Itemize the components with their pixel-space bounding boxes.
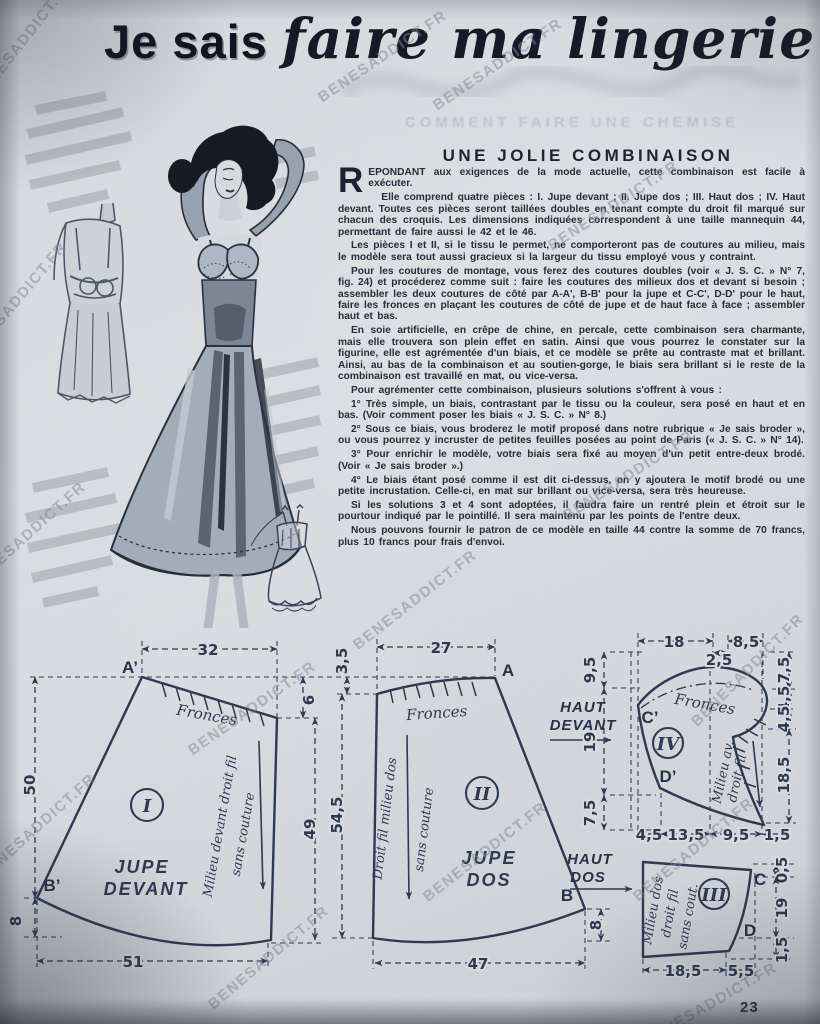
- figure-legs: [208, 574, 244, 628]
- piece-1-corner-a: A’: [122, 658, 138, 677]
- haut-dos-label-2: DOS: [570, 869, 606, 886]
- svg-text:3,5: 3,5: [333, 648, 351, 675]
- svg-text:1,5: 1,5: [773, 937, 791, 964]
- piece-1-name: JUPE: [114, 857, 169, 877]
- piece-1-dimensions: 32 50 8 51 6 49: [7, 641, 325, 971]
- page-number: 23: [740, 999, 759, 1016]
- piece-4-roman: IV: [656, 734, 681, 755]
- page-header: Je saisfaire ma lingerie: [104, 6, 815, 71]
- piece-1-name2: DEVANT: [104, 879, 189, 899]
- paragraph: 4° Le biais étant posé comme il est dit …: [338, 475, 805, 498]
- piece-1-roman: I: [142, 796, 152, 817]
- pattern-piece-4-haut-devant: Fronces IV C’ D’ Milieu av. droit fil 18…: [636, 633, 796, 844]
- piece-1-grainline-label: Milieu devant droit fil: [201, 754, 241, 899]
- svg-text:27: 27: [431, 639, 452, 657]
- svg-text:19: 19: [773, 898, 791, 919]
- piece-1-fronces-label: Fronces: [174, 701, 239, 730]
- svg-text:9,5: 9,5: [581, 657, 599, 684]
- svg-text:8,5: 8,5: [733, 633, 760, 651]
- piece-2-fronces-label: Fronces: [404, 702, 468, 724]
- pattern-diagrams: Fronces I JUPE DEVANT A’ B’ Milieu devan…: [0, 623, 820, 1024]
- svg-text:51: 51: [123, 953, 144, 971]
- svg-text:1,5: 1,5: [764, 826, 791, 844]
- svg-text:2,5: 2,5: [706, 651, 733, 669]
- svg-text:18: 18: [664, 633, 685, 651]
- piece-2-name2: DOS: [466, 870, 511, 890]
- piece-4-corner-c: C’: [642, 708, 659, 727]
- bodice-shading: [214, 304, 246, 341]
- haut-devant-label-2: DEVANT: [550, 717, 617, 734]
- svg-text:7,5: 7,5: [581, 800, 599, 827]
- svg-text:5,5: 5,5: [728, 962, 755, 980]
- section-heading: UNE JOLIE COMBINAISON: [368, 146, 808, 166]
- paragraph: En soie artificielle, en crêpe de chine,…: [338, 325, 805, 382]
- paragraph: Pour les coutures de montage, vous ferez…: [338, 266, 805, 323]
- pattern-piece-3-haut-dos: III C D Milieu dos droit fil sans cout. …: [640, 857, 794, 980]
- piece-4-fronces-label: Fronces: [672, 690, 737, 719]
- piece-pointer-labels: HAUT DEVANT 9,5 19 7,5 HAUT DOS: [550, 652, 662, 889]
- piece-2-grain-arrow: [407, 735, 409, 899]
- paragraph: Pour agrémenter cette combinaison, plusi…: [338, 385, 805, 396]
- paragraph: REPONDANT aux exigences de la mode actue…: [338, 167, 805, 190]
- piece-3-corner-c: C: [754, 870, 766, 889]
- magazine-page: Je saisfaire ma lingerie COMMENT FAIRE U…: [0, 0, 820, 1024]
- svg-text:8: 8: [587, 920, 605, 930]
- svg-text:50: 50: [21, 775, 39, 796]
- piece-4-grain-arrow: [753, 741, 760, 807]
- pattern-piece-2-jupe-dos: Fronces II JUPE DOS A B Droit fil milieu…: [328, 639, 614, 973]
- svg-text:9,5: 9,5: [723, 826, 750, 844]
- pattern-piece-1-jupe-devant: Fronces I JUPE DEVANT A’ B’ Milieu devan…: [7, 641, 325, 971]
- drop-cap: R: [338, 167, 368, 194]
- bra-cup-right: [227, 244, 258, 279]
- svg-text:32: 32: [198, 641, 219, 659]
- svg-text:6: 6: [300, 695, 318, 705]
- svg-text:13,5: 13,5: [667, 826, 704, 844]
- piece-2-roman: II: [473, 784, 491, 805]
- piece-4-corner-d: D’: [660, 767, 677, 786]
- piece-1-corner-b: B’: [44, 876, 61, 895]
- figure-hair-curl: [251, 160, 273, 188]
- paragraph: Nous pouvons fournir le patron de ce mod…: [338, 525, 805, 548]
- main-figure: [111, 126, 321, 628]
- back-view-figure: [54, 203, 130, 403]
- paragraph: Si les solutions 3 et 4 sont adoptées, i…: [338, 500, 805, 523]
- paragraph: Les pièces I et II, si le tissu le perme…: [338, 240, 805, 263]
- svg-text:8: 8: [7, 916, 25, 926]
- fashion-illustration: [18, 88, 334, 628]
- paragraph: 2° Sous ce biais, vous broderez le motif…: [338, 424, 805, 447]
- piece-2-corner-a: A: [502, 661, 514, 680]
- svg-text:4,5: 4,5: [636, 826, 663, 844]
- svg-text:18,5: 18,5: [775, 756, 793, 793]
- haut-devant-label-1: HAUT: [560, 699, 606, 716]
- haut-dos-label-1: HAUT: [567, 851, 613, 868]
- svg-text:18,5: 18,5: [664, 962, 701, 980]
- svg-text:19: 19: [581, 732, 599, 753]
- svg-text:49: 49: [301, 819, 319, 840]
- piece-2-grainline-label2: sans couture: [412, 786, 437, 872]
- piece-3-corner-d: D: [744, 921, 756, 940]
- figure-face: [215, 160, 242, 199]
- piece-1-grainline-label2: sans couture: [229, 791, 259, 877]
- paragraph: Elle comprend quatre pièces : I. Jupe de…: [338, 192, 805, 238]
- piece-3-roman: III: [700, 885, 727, 906]
- piece-1-grain-arrow: [259, 741, 263, 889]
- svg-text:7,5: 7,5: [775, 657, 793, 684]
- article-body: REPONDANT aux exigences de la mode actue…: [338, 167, 805, 625]
- title-je-sais: Je sais: [104, 15, 268, 68]
- paragraph: 1° Très simple, un biais, contrastant pa…: [338, 399, 805, 422]
- piece-2-name: JUPE: [461, 848, 516, 868]
- bleedthrough-headline: COMMENT FAIRE UNE CHEMISE: [352, 114, 792, 131]
- svg-text:47: 47: [468, 955, 489, 973]
- paragraph: 3° Pour enrichir le modèle, votre biais …: [338, 449, 805, 472]
- figure-hair-bun: [168, 159, 196, 193]
- svg-text:4,5: 4,5: [775, 706, 793, 733]
- title-script-lingerie: faire ma lingerie: [282, 6, 815, 71]
- svg-text:54,5: 54,5: [328, 796, 346, 833]
- piece-2-gather-ticks: [390, 682, 476, 703]
